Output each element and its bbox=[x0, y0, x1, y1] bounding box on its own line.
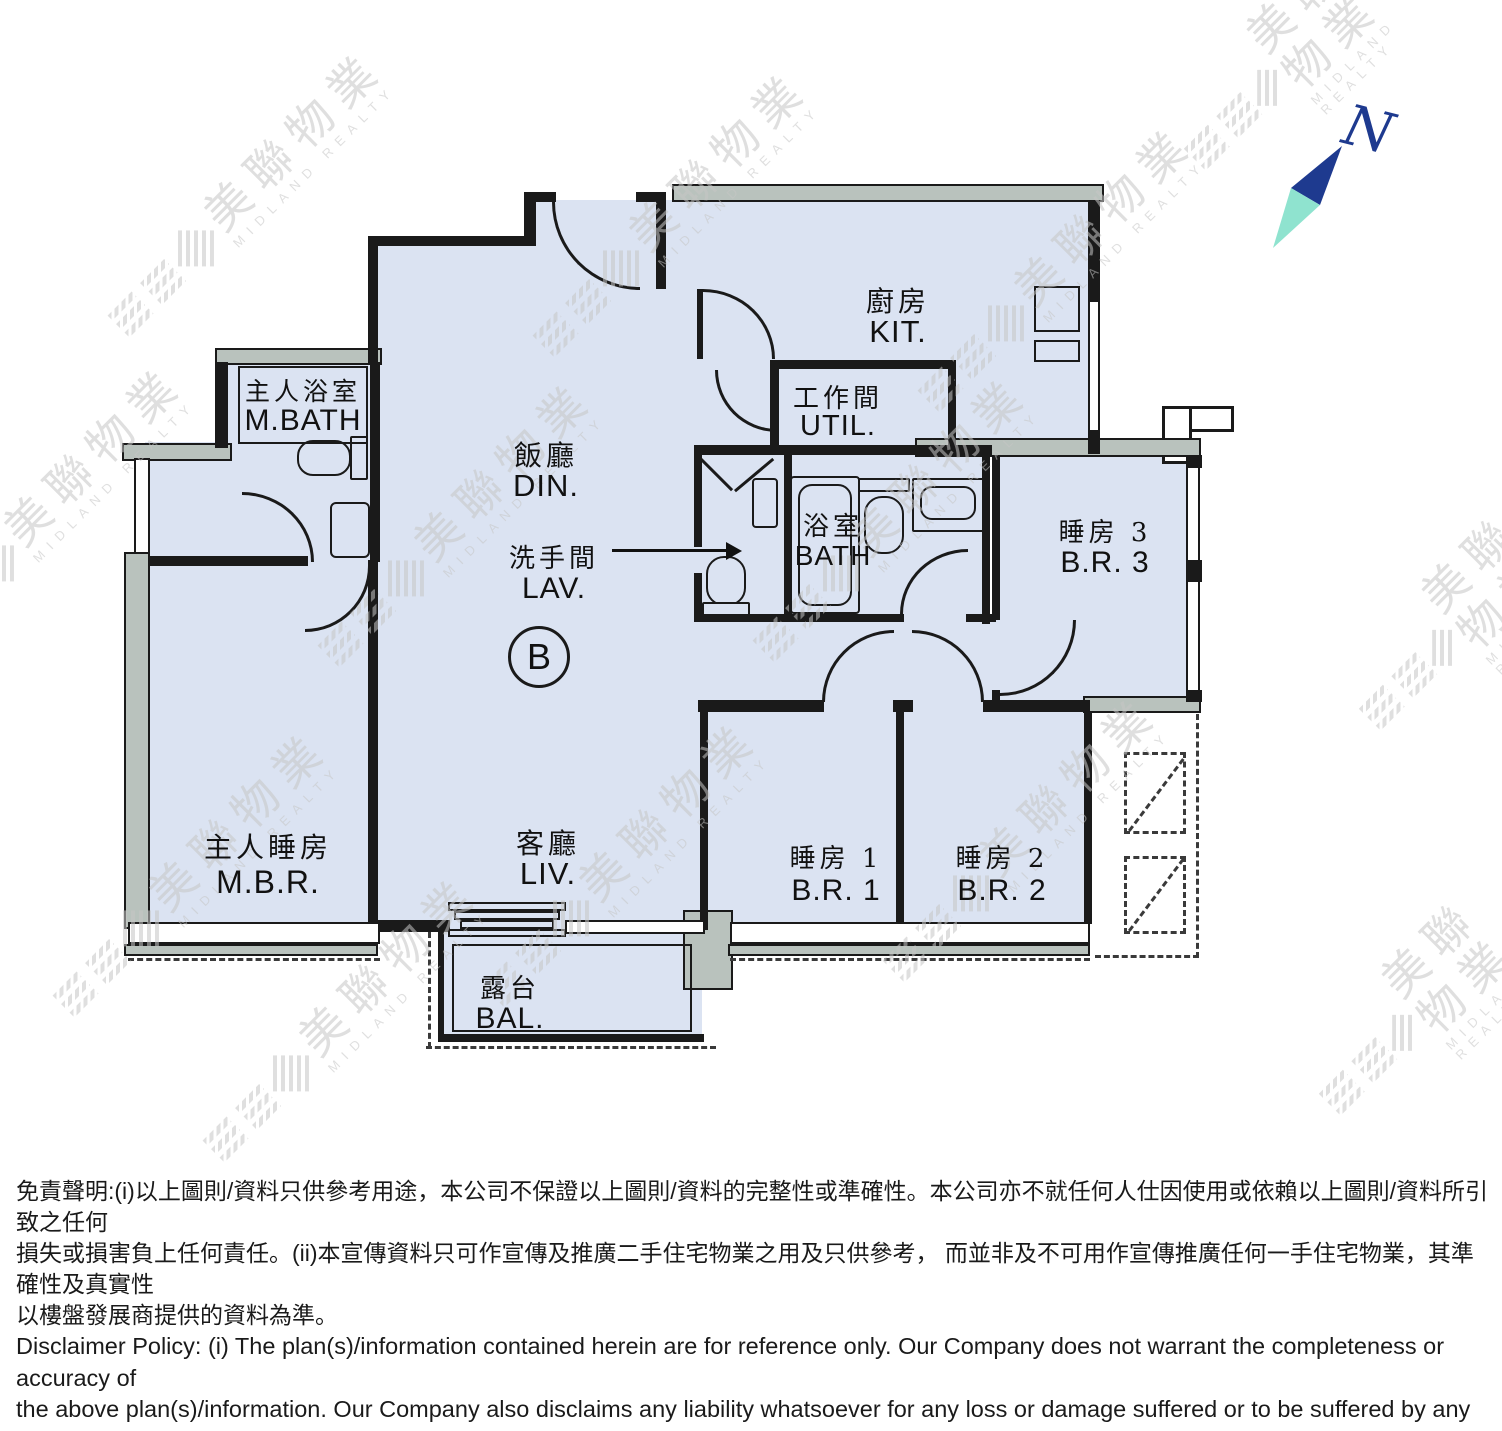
room-label-br2-zh: 睡房 2 bbox=[932, 838, 1072, 875]
wall bbox=[375, 920, 450, 932]
wall bbox=[524, 200, 536, 246]
room-label-br3-en: B.R. 3 bbox=[1040, 546, 1170, 580]
midland-logo-bars-icon bbox=[1359, 685, 1405, 731]
room-label-mbath-en: M.BATH bbox=[238, 404, 368, 438]
room-label-util-en: UTIL. bbox=[778, 410, 898, 443]
kitchen-counter bbox=[1034, 286, 1080, 332]
room-label-kit-en: KIT. bbox=[848, 314, 948, 350]
wall bbox=[368, 560, 378, 932]
midland-logo-diamond-icon bbox=[273, 1056, 309, 1092]
midland-logo-diamond-icon bbox=[1432, 630, 1452, 666]
room-label-bal-zh: 露台 bbox=[455, 968, 565, 1005]
window bbox=[565, 920, 705, 934]
disclaimer-zh-line: 以樓盤發展商提供的資料為準。 bbox=[16, 1300, 1494, 1331]
room-label-lav-en: LAV. bbox=[498, 572, 610, 606]
sink bbox=[920, 486, 976, 520]
disclaimer-block: 免責聲明:(i)以上圖則/資料只供參考用途，本公司不保證以上圖則/資料的完整性或… bbox=[16, 1176, 1494, 1431]
lav-arrow-head-icon bbox=[726, 542, 742, 560]
wall bbox=[1088, 430, 1100, 454]
wall bbox=[370, 362, 380, 562]
midland-logo-bars-icon bbox=[1352, 1037, 1398, 1083]
window bbox=[1088, 300, 1100, 432]
midland-logo-bars-icon bbox=[203, 1117, 249, 1163]
wall-block bbox=[124, 944, 378, 956]
wall bbox=[656, 192, 666, 289]
room-label-br3-zh: 睡房 3 bbox=[1040, 512, 1170, 549]
watermark-zh-text: 美聯物業 bbox=[1237, 0, 1401, 98]
midland-logo-bars-icon bbox=[140, 259, 186, 305]
disclaimer-zh-line: 損失或損害負上任何責任。(ii)本宣傳資料只可作宣傳及推廣二手住宅物業之用及只供… bbox=[16, 1238, 1494, 1300]
wall-block bbox=[728, 944, 1090, 956]
wall bbox=[368, 236, 378, 364]
wall-block bbox=[124, 552, 150, 929]
room-label-br1-zh: 睡房 1 bbox=[766, 838, 906, 875]
midland-logo-bars-icon bbox=[53, 972, 99, 1018]
toilet-bowl bbox=[706, 556, 746, 606]
wall-block bbox=[215, 348, 382, 365]
wall bbox=[770, 360, 956, 369]
north-compass-icon: N bbox=[1258, 88, 1408, 268]
dashed-edge bbox=[128, 958, 380, 964]
wall bbox=[694, 445, 992, 455]
lav-arrow-line bbox=[612, 549, 728, 552]
window bbox=[1186, 466, 1200, 562]
room-label-br1-en: B.R. 1 bbox=[766, 874, 906, 908]
basin bbox=[330, 502, 370, 558]
dashed-edge bbox=[1196, 714, 1202, 958]
dashed-edge bbox=[1095, 955, 1199, 961]
watermark-en-text: MIDLAND REALTY bbox=[1484, 566, 1502, 678]
midland-logo-diamond-icon bbox=[1392, 1015, 1412, 1051]
wall bbox=[370, 236, 532, 246]
wall-block bbox=[1083, 696, 1201, 713]
room-label-bath-zh: 浴室 bbox=[783, 506, 883, 543]
room-label-mbr-zh: 主人睡房 bbox=[183, 826, 353, 866]
room-label-br2-en: B.R. 2 bbox=[932, 874, 1072, 908]
wall bbox=[893, 700, 913, 712]
midland-watermark: 美聯物業MIDLAND REALTY bbox=[96, 41, 405, 350]
window bbox=[128, 922, 380, 944]
midland-logo-bars-icon bbox=[1319, 1070, 1365, 1116]
disclaimer-en-line: Disclaimer Policy: (i) The plan(s)/infor… bbox=[16, 1331, 1494, 1394]
room-label-bath-en: BATH bbox=[783, 540, 883, 572]
room-label-bal-en: BAL. bbox=[455, 1002, 565, 1036]
watermark-en-text: MIDLAND REALTY bbox=[230, 76, 404, 250]
balcony-steps bbox=[448, 902, 566, 911]
dashed-edge bbox=[426, 1046, 716, 1052]
midland-watermark: 美聯物業MIDLAND REALTY bbox=[1284, 879, 1502, 1151]
midland-logo-diamond-icon bbox=[0, 546, 14, 582]
midland-logo-bars-icon bbox=[1217, 92, 1263, 138]
wall bbox=[694, 455, 702, 547]
midland-logo-bars-icon bbox=[108, 292, 154, 338]
wall bbox=[1186, 560, 1202, 582]
window bbox=[134, 458, 150, 554]
toilet-bowl bbox=[297, 440, 351, 476]
balcony-steps bbox=[460, 920, 554, 929]
disclaimer-zh-line: 免責聲明:(i)以上圖則/資料只供參考用途，本公司不保證以上圖則/資料的完整性或… bbox=[16, 1176, 1494, 1238]
dashed-edge bbox=[428, 932, 434, 1048]
midland-logo-diamond-icon bbox=[178, 231, 214, 267]
window bbox=[1186, 580, 1200, 692]
wall bbox=[438, 932, 444, 1042]
wall bbox=[215, 362, 228, 448]
toilet-base bbox=[702, 602, 750, 616]
wall bbox=[948, 360, 956, 452]
watermark-zh-text: 美聯物業 bbox=[195, 41, 395, 241]
wall bbox=[698, 700, 824, 712]
unit-label: B bbox=[508, 626, 570, 688]
toilet-tank bbox=[858, 478, 910, 492]
compass-n-letter: N bbox=[1335, 92, 1402, 168]
floorplan-page: 主人浴室 M.BATH 飯廳 DIN. 廚房 KIT. 工作間 UTIL. 洗手… bbox=[0, 0, 1502, 1431]
watermark-zh-text: 美聯物業 bbox=[1412, 494, 1502, 658]
midland-logo-bars-icon bbox=[1184, 125, 1230, 171]
room-label-mbr-en: M.B.R. bbox=[183, 864, 353, 901]
wall bbox=[983, 700, 1090, 712]
watermark-zh-text: 美聯物業 bbox=[1372, 879, 1502, 1043]
wall bbox=[700, 712, 708, 930]
dashed-edge bbox=[730, 958, 1090, 964]
midland-watermark: 美聯物業MIDLAND REALTY bbox=[1324, 494, 1502, 766]
wall-block bbox=[672, 184, 1104, 202]
room-label-lav-zh: 洗手間 bbox=[498, 538, 610, 575]
wall bbox=[694, 573, 702, 617]
basin bbox=[752, 478, 778, 528]
wall bbox=[1084, 712, 1092, 924]
wall bbox=[992, 455, 1000, 620]
disclaimer-en-line: the above plan(s)/information. Our Compa… bbox=[16, 1394, 1494, 1431]
kitchen-counter bbox=[1034, 340, 1080, 362]
midland-logo-bars-icon bbox=[1392, 652, 1438, 698]
window bbox=[730, 922, 1090, 944]
watermark-en-text: MIDLAND REALTY bbox=[1444, 951, 1502, 1063]
midland-logo-bars-icon bbox=[235, 1084, 281, 1130]
balcony-steps bbox=[448, 929, 566, 937]
room-label-liv-en: LIV. bbox=[493, 856, 603, 892]
room-label-din-en: DIN. bbox=[496, 468, 596, 504]
balcony-steps bbox=[454, 911, 560, 920]
wall bbox=[982, 448, 990, 624]
wall bbox=[1088, 200, 1100, 302]
room-label-mbath-zh: 主人浴室 bbox=[238, 372, 368, 408]
room-floor bbox=[948, 362, 1090, 450]
